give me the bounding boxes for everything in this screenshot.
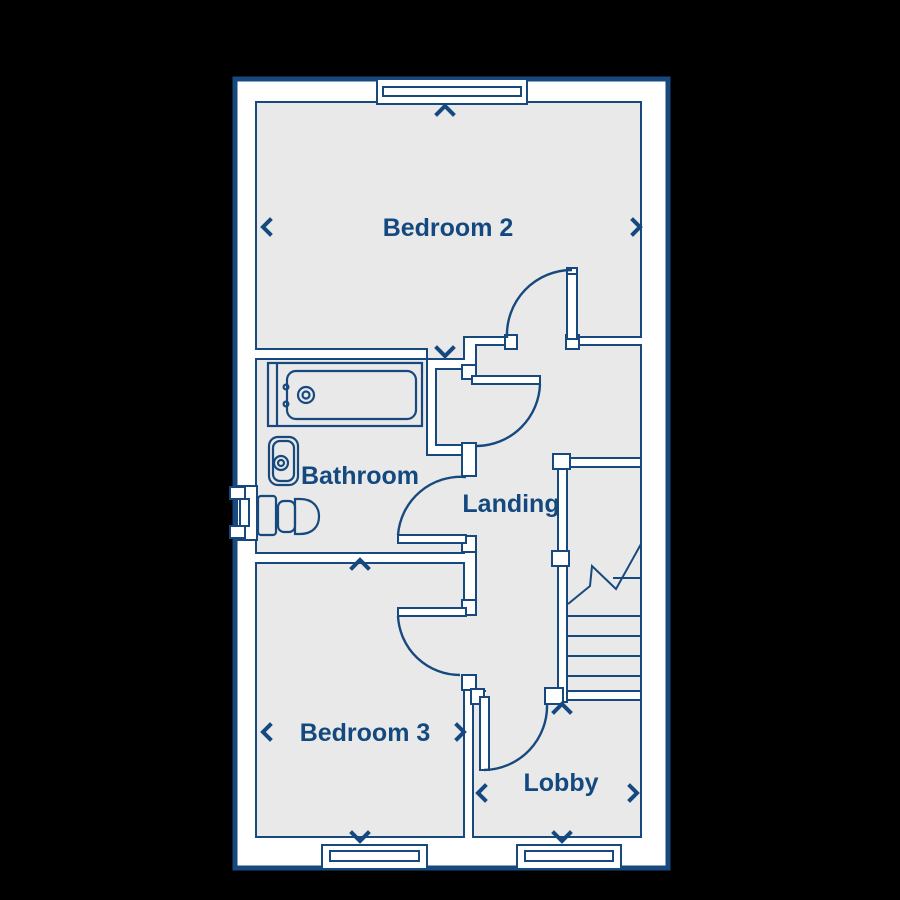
room-label-bathroom: Bathroom [301, 462, 419, 490]
room-label-bedroom3: Bedroom 3 [300, 719, 431, 747]
opening-cupboard [460, 379, 478, 444]
room-cupboard-floor [436, 369, 464, 445]
window-top [377, 79, 527, 104]
room-label-bedroom2: Bedroom 2 [383, 214, 514, 242]
post [462, 443, 476, 476]
window-bottom-left [322, 845, 427, 869]
floorplan-svg: Bedroom 2 Bathroom Landing Bedroom 3 Lob… [0, 0, 900, 900]
banister-post [545, 688, 563, 704]
door-leaf [398, 535, 466, 543]
banister-post [553, 454, 570, 469]
opening-bedroom2 [517, 333, 566, 349]
stair-bottom-edge [566, 691, 641, 700]
banister-post [552, 551, 569, 566]
window-bottom-right [517, 845, 621, 869]
opening-bedroom3 [460, 616, 478, 675]
door-leaf [398, 608, 466, 616]
room-bedroom3-floor [256, 563, 464, 837]
post [462, 675, 476, 690]
door-leaf [472, 376, 540, 384]
opening-lobby [486, 688, 546, 706]
door-leaf [567, 268, 577, 339]
stair-top-rail [566, 458, 641, 467]
door-leaf [480, 697, 489, 770]
room-label-landing: Landing [462, 490, 559, 518]
room-label-lobby: Lobby [524, 769, 599, 797]
